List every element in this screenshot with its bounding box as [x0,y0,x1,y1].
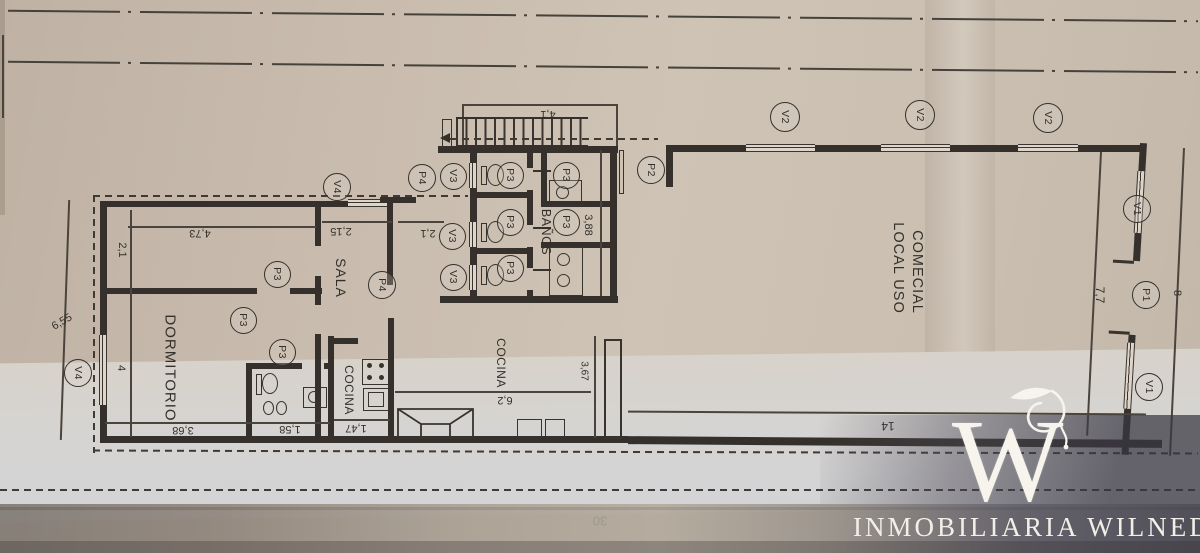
opening-marker-p3: P3 [497,209,524,236]
dimension-label: 2,1 [116,242,128,257]
opening-marker-p3: P3 [264,261,291,288]
floor-plan-photo: DORMITORIOSALACOCINACOCINABAÑOSLOCAL USO… [0,0,1200,553]
marker-label: P3 [504,215,516,229]
opening-marker-v2: V2 [770,102,800,132]
marker-label: P3 [504,261,516,275]
opening-marker-p3: P3 [269,339,296,366]
opening-marker-v3: V3 [440,163,467,190]
marker-label: V1 [1143,380,1155,394]
marker-label: V3 [446,229,458,243]
opening-marker-v3: V3 [439,223,466,250]
opening-marker-v1: V1 [1123,195,1151,223]
room-label: COMECIAL [909,230,925,314]
room-label: DORMITORIO [162,314,179,421]
opening-marker-v4: V4 [323,173,351,201]
marker-label: V3 [447,270,459,284]
marker-label: P3 [237,313,249,327]
marker-label: P4 [416,171,428,185]
marker-label: P3 [271,267,283,281]
marker-label: V4 [72,366,84,380]
dimension-label: 3,67 [579,361,590,380]
room-label: COCINA [494,338,508,388]
dimension-label: 4,73 [189,227,210,239]
opening-marker-p3: P3 [497,162,524,189]
dimension-label: 6,2 [497,394,512,406]
opening-marker-p1: P1 [1132,281,1160,309]
opening-marker-p3: P3 [230,307,257,334]
dimension-label: 1,47 [345,422,366,434]
opening-marker-p3: P3 [497,255,524,282]
dimension-label: 6,55 [50,311,75,332]
marker-label: P1 [1140,288,1152,302]
opening-marker-v2: V2 [905,100,935,130]
dimension-label: 1,58 [279,423,300,435]
marker-label: P3 [276,345,288,359]
opening-marker-p3: P3 [553,162,580,189]
dimension-label: 7,7 [1093,287,1107,304]
watermark-leaf-flourish [1000,378,1080,458]
marker-label: V2 [914,108,926,122]
opening-marker-v1: V1 [1135,373,1163,401]
room-label: BAÑOS [539,209,553,255]
marker-label: V1 [1131,202,1143,216]
dimension-label: 4,1 [540,108,555,120]
dimension-label: 4 [115,365,127,371]
room-label: COCINA [342,365,356,415]
opening-marker-p2: P2 [637,156,665,184]
dimension-label: 2,1 [420,227,435,239]
marker-label: P4 [376,278,388,292]
opening-marker-v2: V2 [1033,103,1063,133]
marker-label: V3 [447,169,459,183]
dimension-label: 2,15 [330,225,351,237]
marker-label: P3 [560,168,572,182]
watermark-brand-name: INMOBILIARIA WILNEDER [853,512,1200,543]
opening-marker-v3: V3 [440,264,467,291]
marker-label: V2 [1042,111,1054,125]
opening-marker-p4: P4 [408,164,436,192]
marker-label: V4 [331,180,343,194]
dimension-label: 3,88 [582,214,594,235]
marker-label: P3 [504,168,516,182]
opening-marker-p3: P3 [553,209,580,236]
opening-marker-p4: P4 [368,271,396,299]
opening-marker-v4: V4 [64,359,92,387]
room-label: SALA [333,258,349,298]
marker-label: P2 [645,163,657,177]
marker-label: V2 [779,110,791,124]
room-label: LOCAL USO [890,222,906,313]
marker-label: P3 [560,215,572,229]
dimension-label: 3,68 [172,424,193,436]
dimension-label: 8 [1171,290,1183,296]
